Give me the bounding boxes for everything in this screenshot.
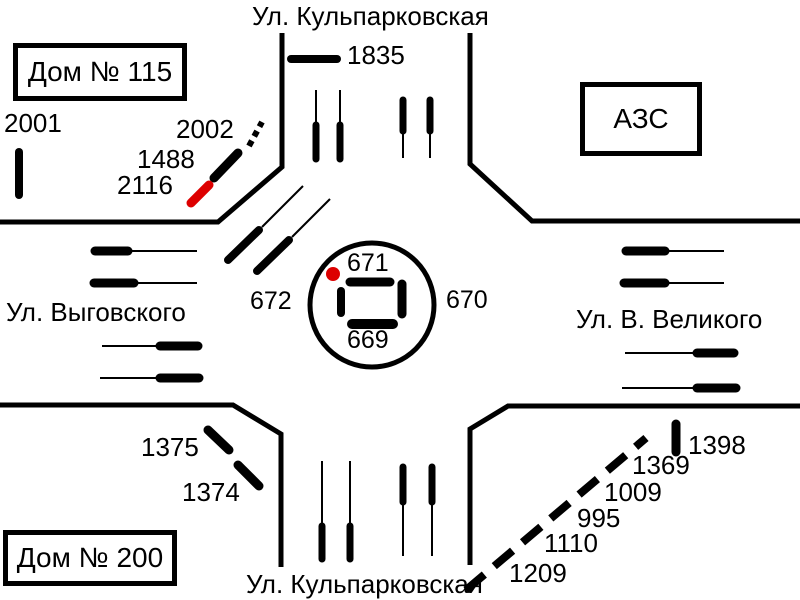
arrow-head xyxy=(257,240,289,271)
marker-bar-2002-dashed xyxy=(249,122,262,146)
street-name-right: Ул. В. Великого xyxy=(576,306,762,332)
arrow-line xyxy=(262,186,303,227)
intersection-diagram: Ул. Кульпарковская Ул. Кульпарковская Ул… xyxy=(0,0,800,600)
marker-bar-2116-red xyxy=(191,185,209,203)
marker-label-1209: 1209 xyxy=(509,560,567,586)
bottom-road-arrows xyxy=(322,461,432,559)
marker-label-1488: 1488 xyxy=(137,146,195,172)
arrow-head xyxy=(228,230,259,260)
roundabout-number-669: 669 xyxy=(347,328,389,353)
street-name-top: Ул. Кульпарковская xyxy=(252,3,489,29)
marker-label-2116: 2116 xyxy=(117,172,173,198)
marker-label-1110: 1110 xyxy=(544,530,598,556)
marker-label-1375: 1375 xyxy=(141,434,199,460)
arrow-line xyxy=(292,199,330,237)
roundabout-number-671: 671 xyxy=(347,251,389,276)
marker-label-1835: 1835 xyxy=(347,42,405,68)
marker-label-2002: 2002 xyxy=(176,116,234,142)
house-115-box: Дом № 115 xyxy=(13,43,187,101)
marker-bar-1375 xyxy=(208,430,229,450)
roundabout-number-670: 670 xyxy=(446,288,488,313)
house-115-label: Дом № 115 xyxy=(28,58,172,86)
top-road-arrows xyxy=(316,90,430,159)
street-name-bottom: Ул. Кульпарковская xyxy=(246,571,483,597)
highlight-dot xyxy=(326,267,340,281)
marker-bar-1374 xyxy=(238,465,259,486)
roundabout-number-672: 672 xyxy=(250,289,292,314)
marker-label-1369: 1369 xyxy=(632,452,690,478)
gas-station-label: АЗС xyxy=(613,105,668,133)
marker-label-1009: 1009 xyxy=(604,479,662,505)
gas-station-box: АЗС xyxy=(580,82,702,156)
house-200-box: Дом № 200 xyxy=(3,530,177,586)
house-200-label: Дом № 200 xyxy=(17,544,163,572)
marker-label-1398: 1398 xyxy=(688,432,746,458)
roundabout-inner-bars xyxy=(341,282,402,324)
marker-label-1374: 1374 xyxy=(182,479,240,505)
street-name-left: Ул. Выговского xyxy=(6,299,186,325)
marker-bar-1488 xyxy=(214,153,238,178)
marker-label-2001: 2001 xyxy=(4,110,62,136)
